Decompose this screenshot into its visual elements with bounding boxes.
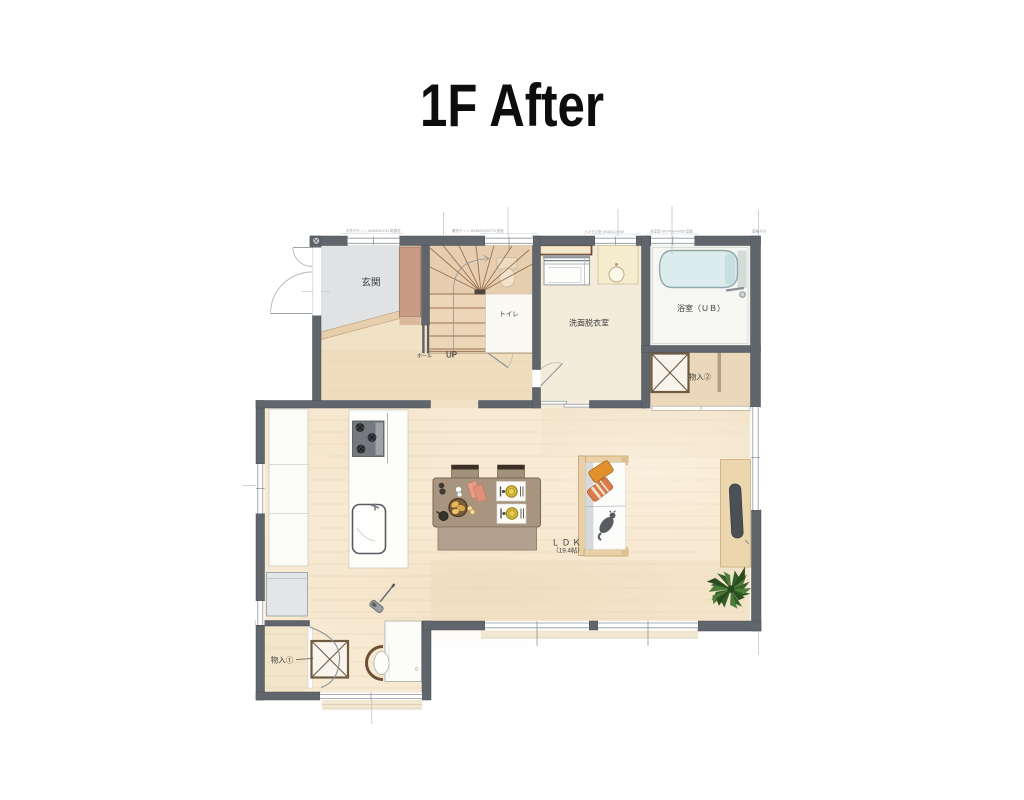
svg-text:半外付サッシ W16409×H11 取替窓: 半外付サッシ W16409×H11 取替窓 xyxy=(346,228,401,233)
svg-text:物入①: 物入① xyxy=(271,655,294,665)
svg-text:UP: UP xyxy=(446,351,457,360)
svg-text:ホール: ホール xyxy=(417,354,432,360)
svg-text:玄関: 玄関 xyxy=(361,277,380,289)
svg-text:洗面脱衣室: 洗面脱衣室 xyxy=(569,318,609,328)
svg-text:（19.4帖）: （19.4帖） xyxy=(552,546,583,555)
svg-text:上げ下げ窓 W06011×H09: 上げ下げ窓 W06011×H09 xyxy=(584,229,624,234)
svg-text:物入②: 物入② xyxy=(689,372,712,382)
svg-text:浴室窓 W07409×H059 型板: 浴室窓 W07409×H059 型板 xyxy=(650,229,693,234)
svg-text:トイレ: トイレ xyxy=(499,311,519,318)
svg-text:浴室（ＵＢ）: 浴室（ＵＢ） xyxy=(677,303,725,313)
svg-text:ＬＤＫ: ＬＤＫ xyxy=(551,538,583,548)
svg-text:腰窓サッシ W16409×H0770 型板: 腰窓サッシ W16409×H0770 型板 xyxy=(452,228,504,233)
svg-text:面格子付: 面格子付 xyxy=(752,229,766,234)
